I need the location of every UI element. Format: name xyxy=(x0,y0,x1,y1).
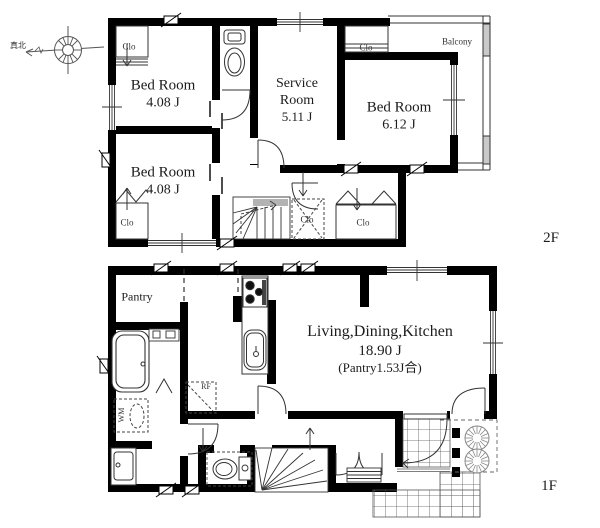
bath-counter xyxy=(149,329,179,341)
room-label-ldk: Living,Dining,Kitchen 18.90 J (Pantry1.5… xyxy=(307,322,453,376)
room-name: Bed Room xyxy=(131,163,196,181)
floor-label-2f: 2F xyxy=(543,229,559,247)
bathtub-icon xyxy=(112,331,149,392)
floor-label-1f: 1F xyxy=(541,477,557,495)
room-label-bedroom-right: Bed Room 6.12 J xyxy=(367,98,432,133)
closet-label: Clo xyxy=(120,218,133,229)
room-name: Bed Room xyxy=(131,76,196,94)
vanity-icon xyxy=(111,448,136,485)
room-label-service-room: Service Room 5.11 J xyxy=(261,75,333,125)
refrigerator-label: RF xyxy=(201,382,211,392)
room-label-bedroom-top-left: Bed Room 4.08 J xyxy=(131,76,196,111)
shrub-icon xyxy=(465,426,489,450)
room-name: Living,Dining,Kitchen xyxy=(307,322,453,342)
room-name: Bed Room xyxy=(367,98,432,116)
kitchen-counter xyxy=(242,276,268,374)
porch-tiles-side xyxy=(440,472,480,517)
toilet-2f-icon xyxy=(224,30,245,76)
compass-icon xyxy=(26,26,104,74)
bath-fold-door xyxy=(156,379,172,393)
closet-label: Clo xyxy=(359,43,372,54)
room-name: Service Room xyxy=(261,75,333,109)
stove-icon xyxy=(243,278,267,307)
washing-machine-label: WM xyxy=(117,408,127,423)
shoe-closet xyxy=(336,452,382,482)
pantry-label: Pantry xyxy=(121,290,152,305)
stairs-2f xyxy=(233,197,290,239)
room-label-bedroom-bottom-left: Bed Room 4.08 J xyxy=(131,163,196,198)
true-north-label: 真北 xyxy=(10,41,26,51)
room-area: 4.08 J xyxy=(131,95,196,112)
stairs-1f xyxy=(255,448,328,492)
porch-posts xyxy=(452,428,460,477)
genkan-tiles xyxy=(403,419,450,467)
room-area: 5.11 J xyxy=(261,109,333,125)
closet-label: Clo xyxy=(356,218,369,229)
entrance xyxy=(373,414,497,517)
toilet-1f-icon xyxy=(207,452,252,486)
closet-2f-hall xyxy=(336,191,396,239)
floor-plan-page: 真北 Bed Room 4.08 J Bed Room 4.08 J Servi… xyxy=(0,0,600,528)
balcony-label: Balcony xyxy=(442,37,472,48)
room-area: 4.08 J xyxy=(131,182,196,199)
closet-label: Clo xyxy=(122,42,135,53)
kitchen-sink-icon xyxy=(244,330,266,370)
balcony-railing xyxy=(388,16,490,170)
closet-label: Clo xyxy=(300,215,313,226)
room-note: (Pantry1.53J合) xyxy=(307,360,453,376)
shrub-icon xyxy=(465,449,489,473)
room-area: 6.12 J xyxy=(367,117,432,134)
room-area: 18.90 J xyxy=(307,342,453,360)
